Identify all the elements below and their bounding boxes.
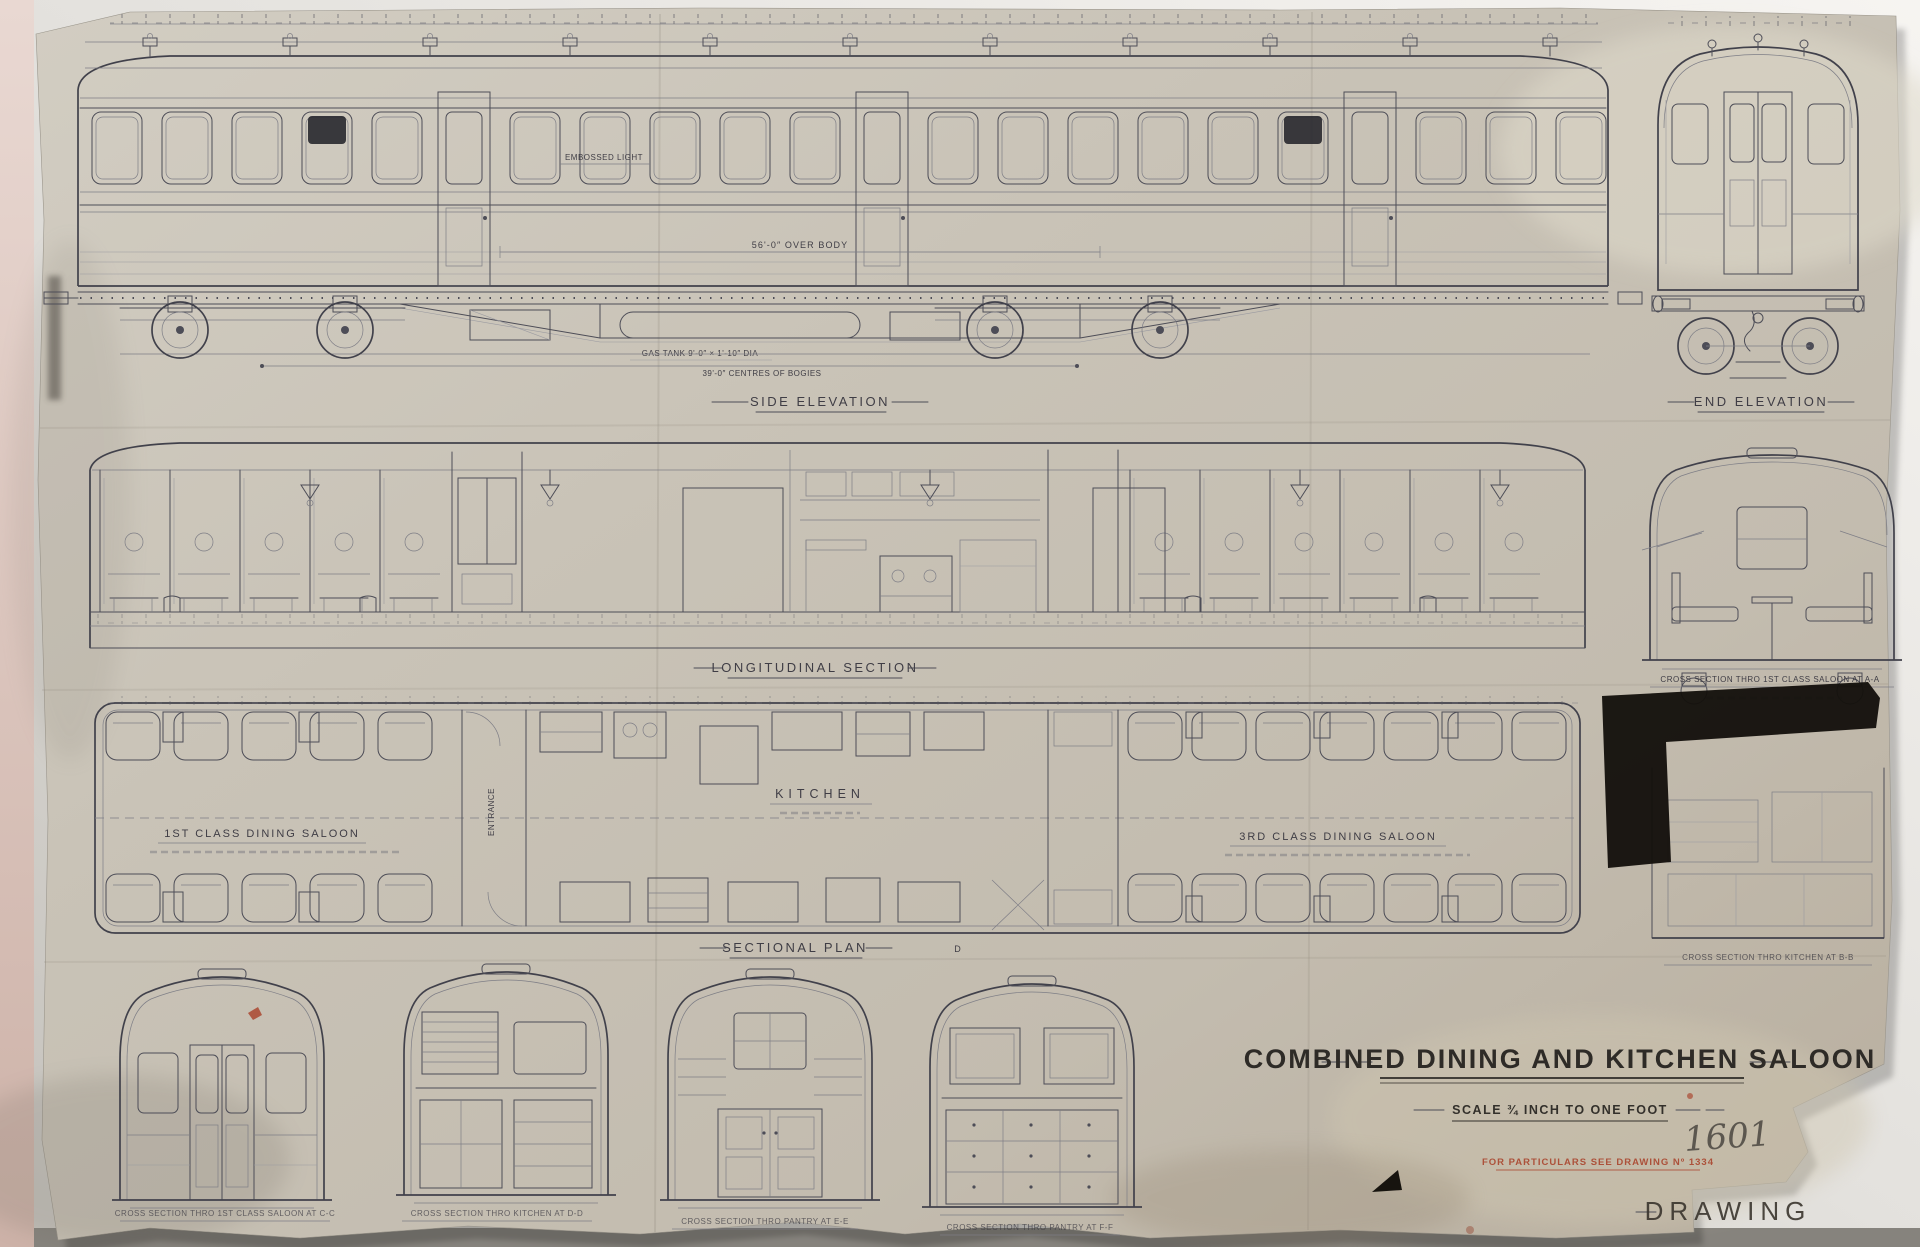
section-marker-d: D [954, 944, 962, 954]
cross-section-aa-label: CROSS SECTION THRO 1ST CLASS SALOON AT A… [1660, 675, 1879, 684]
dark-window-shade [1284, 116, 1322, 144]
red-speck [1687, 1093, 1693, 1099]
dim-bogie-centres: 39'-0″ CENTRES OF BOGIES [702, 369, 821, 378]
room-third-class-label: 3RD CLASS DINING SALOON [1239, 831, 1437, 843]
dim-over-body: 56'-0″ OVER BODY [752, 240, 849, 250]
drawing-number-handwritten: 1601 [1683, 1114, 1772, 1160]
red-speck [1466, 1226, 1474, 1234]
top-dimension-row [110, 14, 1860, 26]
dark-window-shade [308, 116, 346, 144]
drawing-stamp-text: DRAWING [1645, 1196, 1812, 1226]
cross-section-dd-label: CROSS SECTION THRO KITCHEN AT D-D [411, 1209, 584, 1218]
cross-section-cc-label: CROSS SECTION THRO 1ST CLASS SALOON AT C… [115, 1209, 335, 1218]
room-kitchen-label: KITCHEN [775, 787, 865, 801]
embossed-light-note: EMBOSSED LIGHT [565, 153, 643, 162]
red-reference-note: FOR PARTICULARS SEE DRAWING Nº 1334 [1482, 1157, 1714, 1168]
cross-section-bb-label: CROSS SECTION THRO KITCHEN AT B-B [1682, 953, 1854, 962]
room-entrance-label: ENTRANCE [487, 788, 496, 836]
scale-note: SCALE ¾ INCH TO ONE FOOT [1452, 1103, 1668, 1117]
dark-edge-smudge [48, 276, 61, 400]
room-first-class-label: 1ST CLASS DINING SALOON [164, 828, 360, 840]
cross-section-ff-label: CROSS SECTION THRO PANTRY AT F-F [947, 1223, 1114, 1232]
sectional-plan-label: SECTIONAL PLAN [722, 940, 868, 955]
longitudinal-section-label: LONGITUDINAL SECTION [712, 660, 919, 675]
photo-of-engineering-drawing: EMBOSSED LIGHT 56'-0″ OVER BODY GAS TANK… [0, 0, 1920, 1247]
end-elevation-label: END ELEVATION [1694, 394, 1829, 409]
gas-tank-note: GAS TANK 9'-0″ × 1'-10″ DIA [642, 349, 759, 358]
cross-section-ee-label: CROSS SECTION THRO PANTRY AT E-E [681, 1217, 849, 1226]
main-title: COMBINED DINING AND KITCHEN SALOON [1244, 1044, 1877, 1074]
side-elevation-label: SIDE ELEVATION [750, 394, 890, 409]
